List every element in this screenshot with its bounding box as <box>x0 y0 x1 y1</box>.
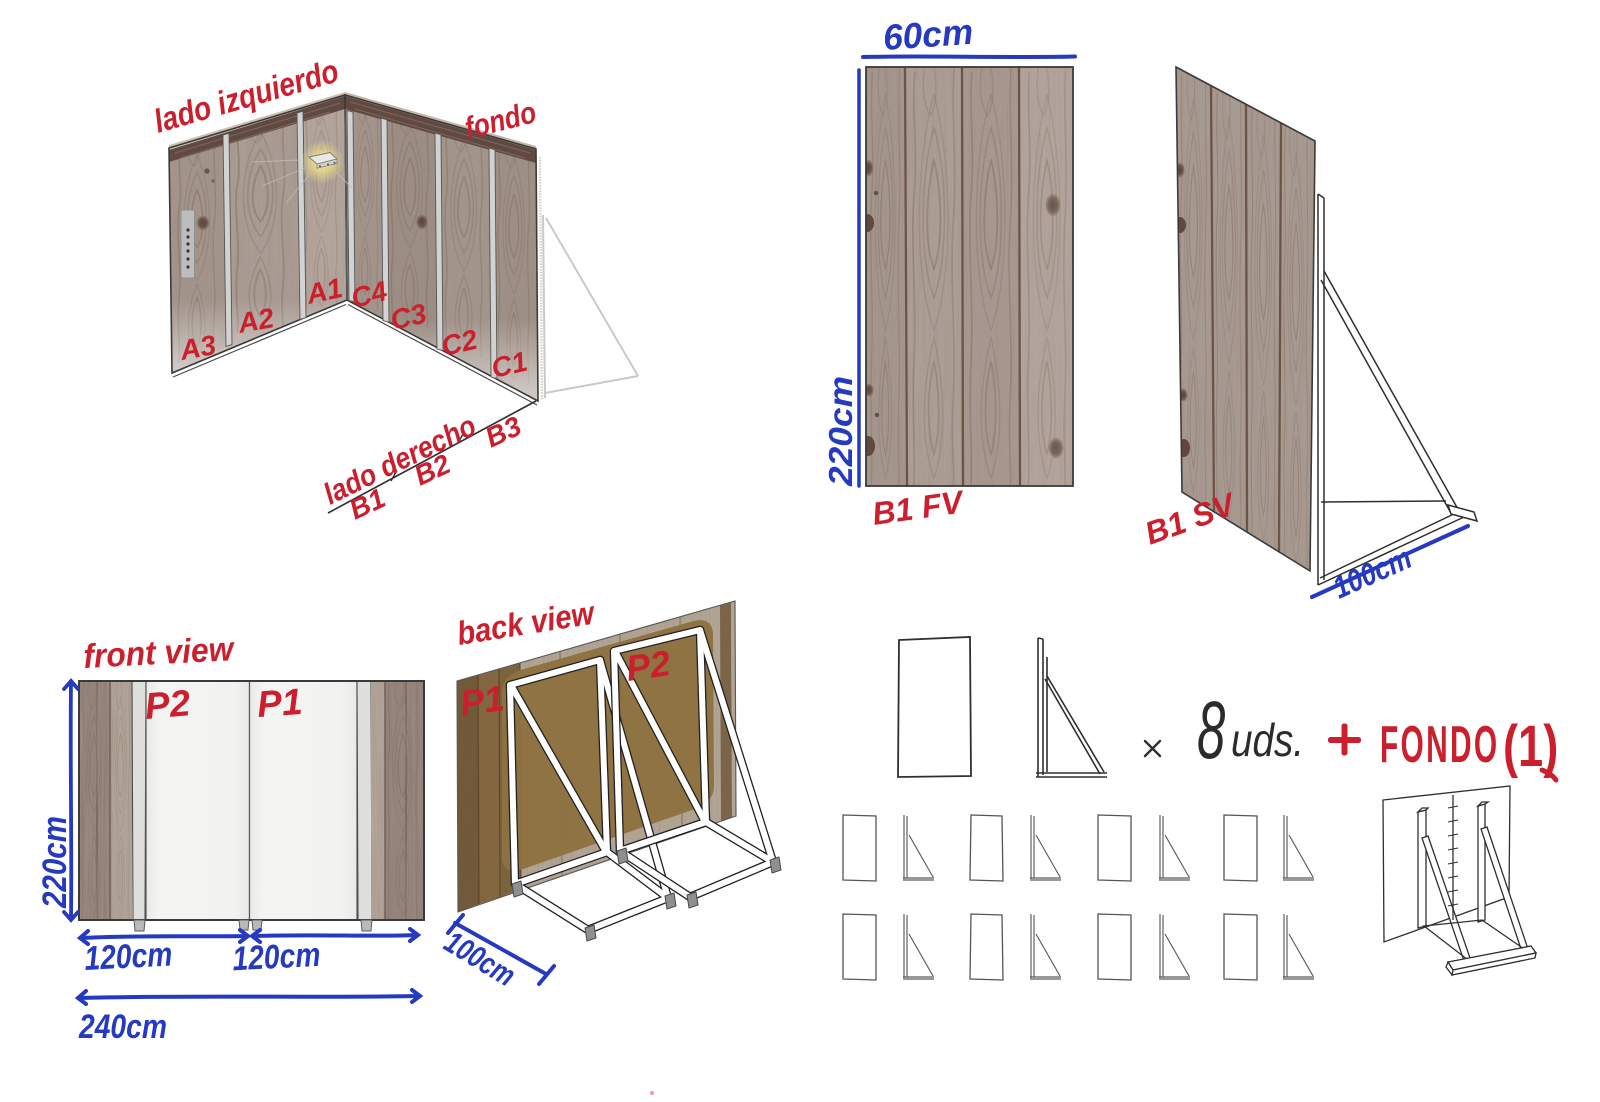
svg-text:120cm: 120cm <box>83 935 173 978</box>
svg-text:uds.: uds. <box>1231 714 1304 766</box>
svg-text:220cm: 220cm <box>36 816 74 909</box>
svg-text:A2: A2 <box>235 302 277 339</box>
svg-text:FONDO: FONDO <box>1380 715 1499 773</box>
svg-text:front view: front view <box>82 630 236 676</box>
svg-text:120cm: 120cm <box>231 936 321 979</box>
svg-text:240cm: 240cm <box>78 1008 167 1046</box>
svg-text:P2: P2 <box>623 642 672 689</box>
svg-text:220cm: 220cm <box>822 376 859 487</box>
svg-text:P1: P1 <box>256 681 304 725</box>
svg-text:P1: P1 <box>457 677 506 724</box>
svg-text:P2: P2 <box>143 682 192 727</box>
svg-text:60cm: 60cm <box>882 11 975 58</box>
svg-text:(1): (1) <box>1503 715 1558 780</box>
svg-text:A3: A3 <box>177 329 219 366</box>
svg-text:8: 8 <box>1197 685 1225 776</box>
